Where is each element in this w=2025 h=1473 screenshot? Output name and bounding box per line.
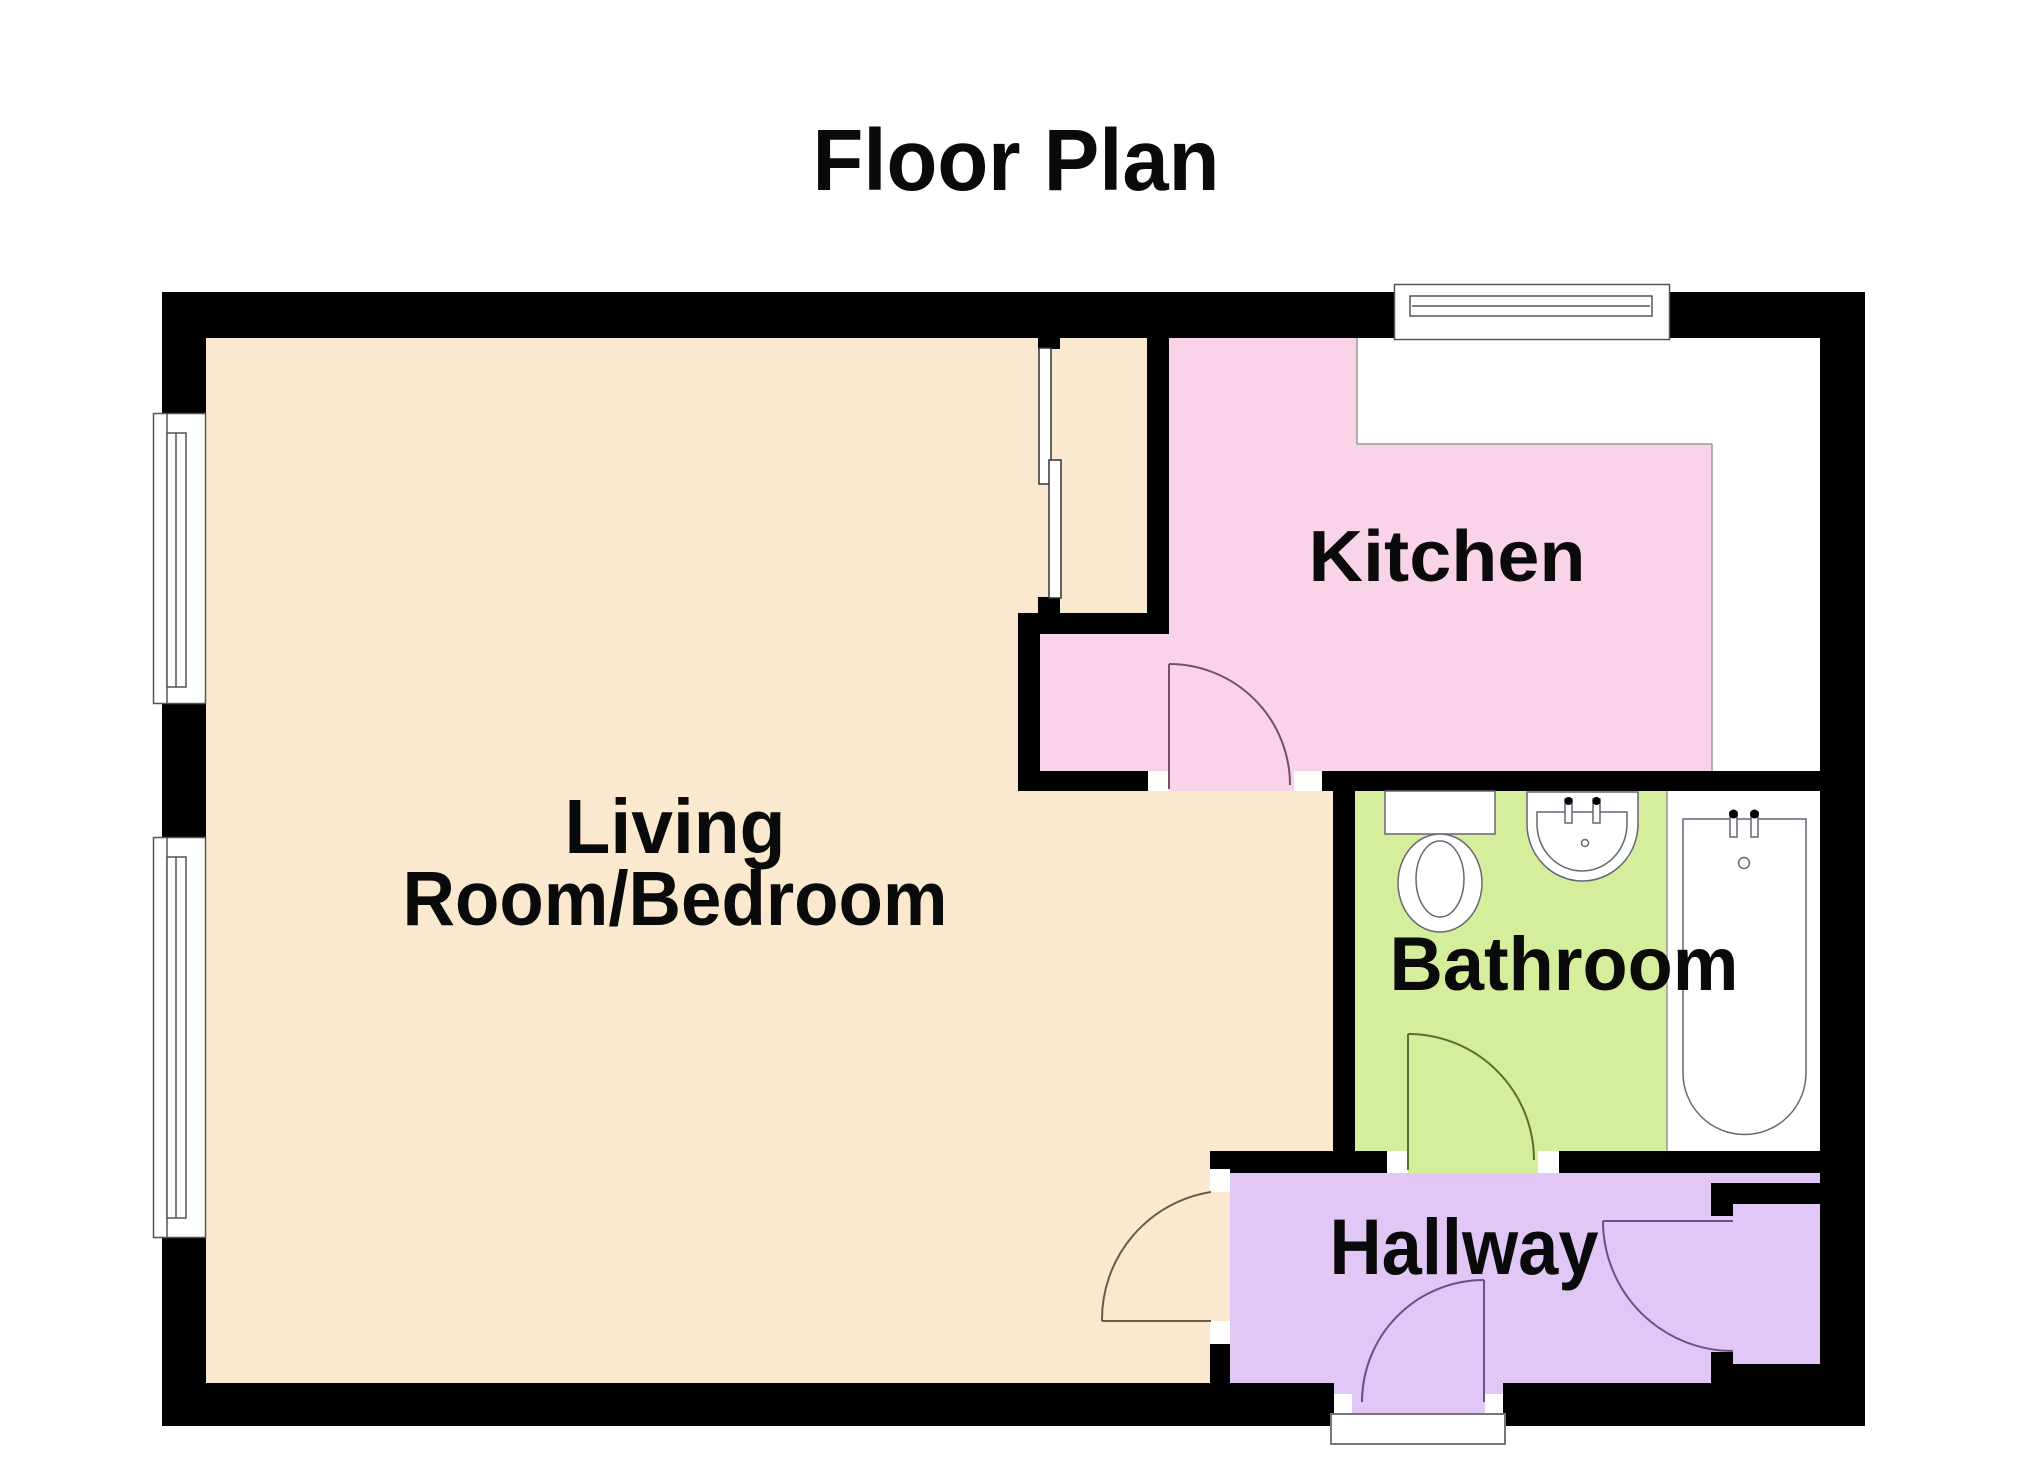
svg-text:Bathroom: Bathroom bbox=[1390, 922, 1739, 1007]
svg-text:Kitchen: Kitchen bbox=[1309, 517, 1586, 597]
svg-text:Hallway: Hallway bbox=[1330, 1202, 1599, 1291]
svg-text:Room/Bedroom: Room/Bedroom bbox=[403, 856, 948, 942]
svg-text:Floor Plan: Floor Plan bbox=[813, 112, 1220, 209]
